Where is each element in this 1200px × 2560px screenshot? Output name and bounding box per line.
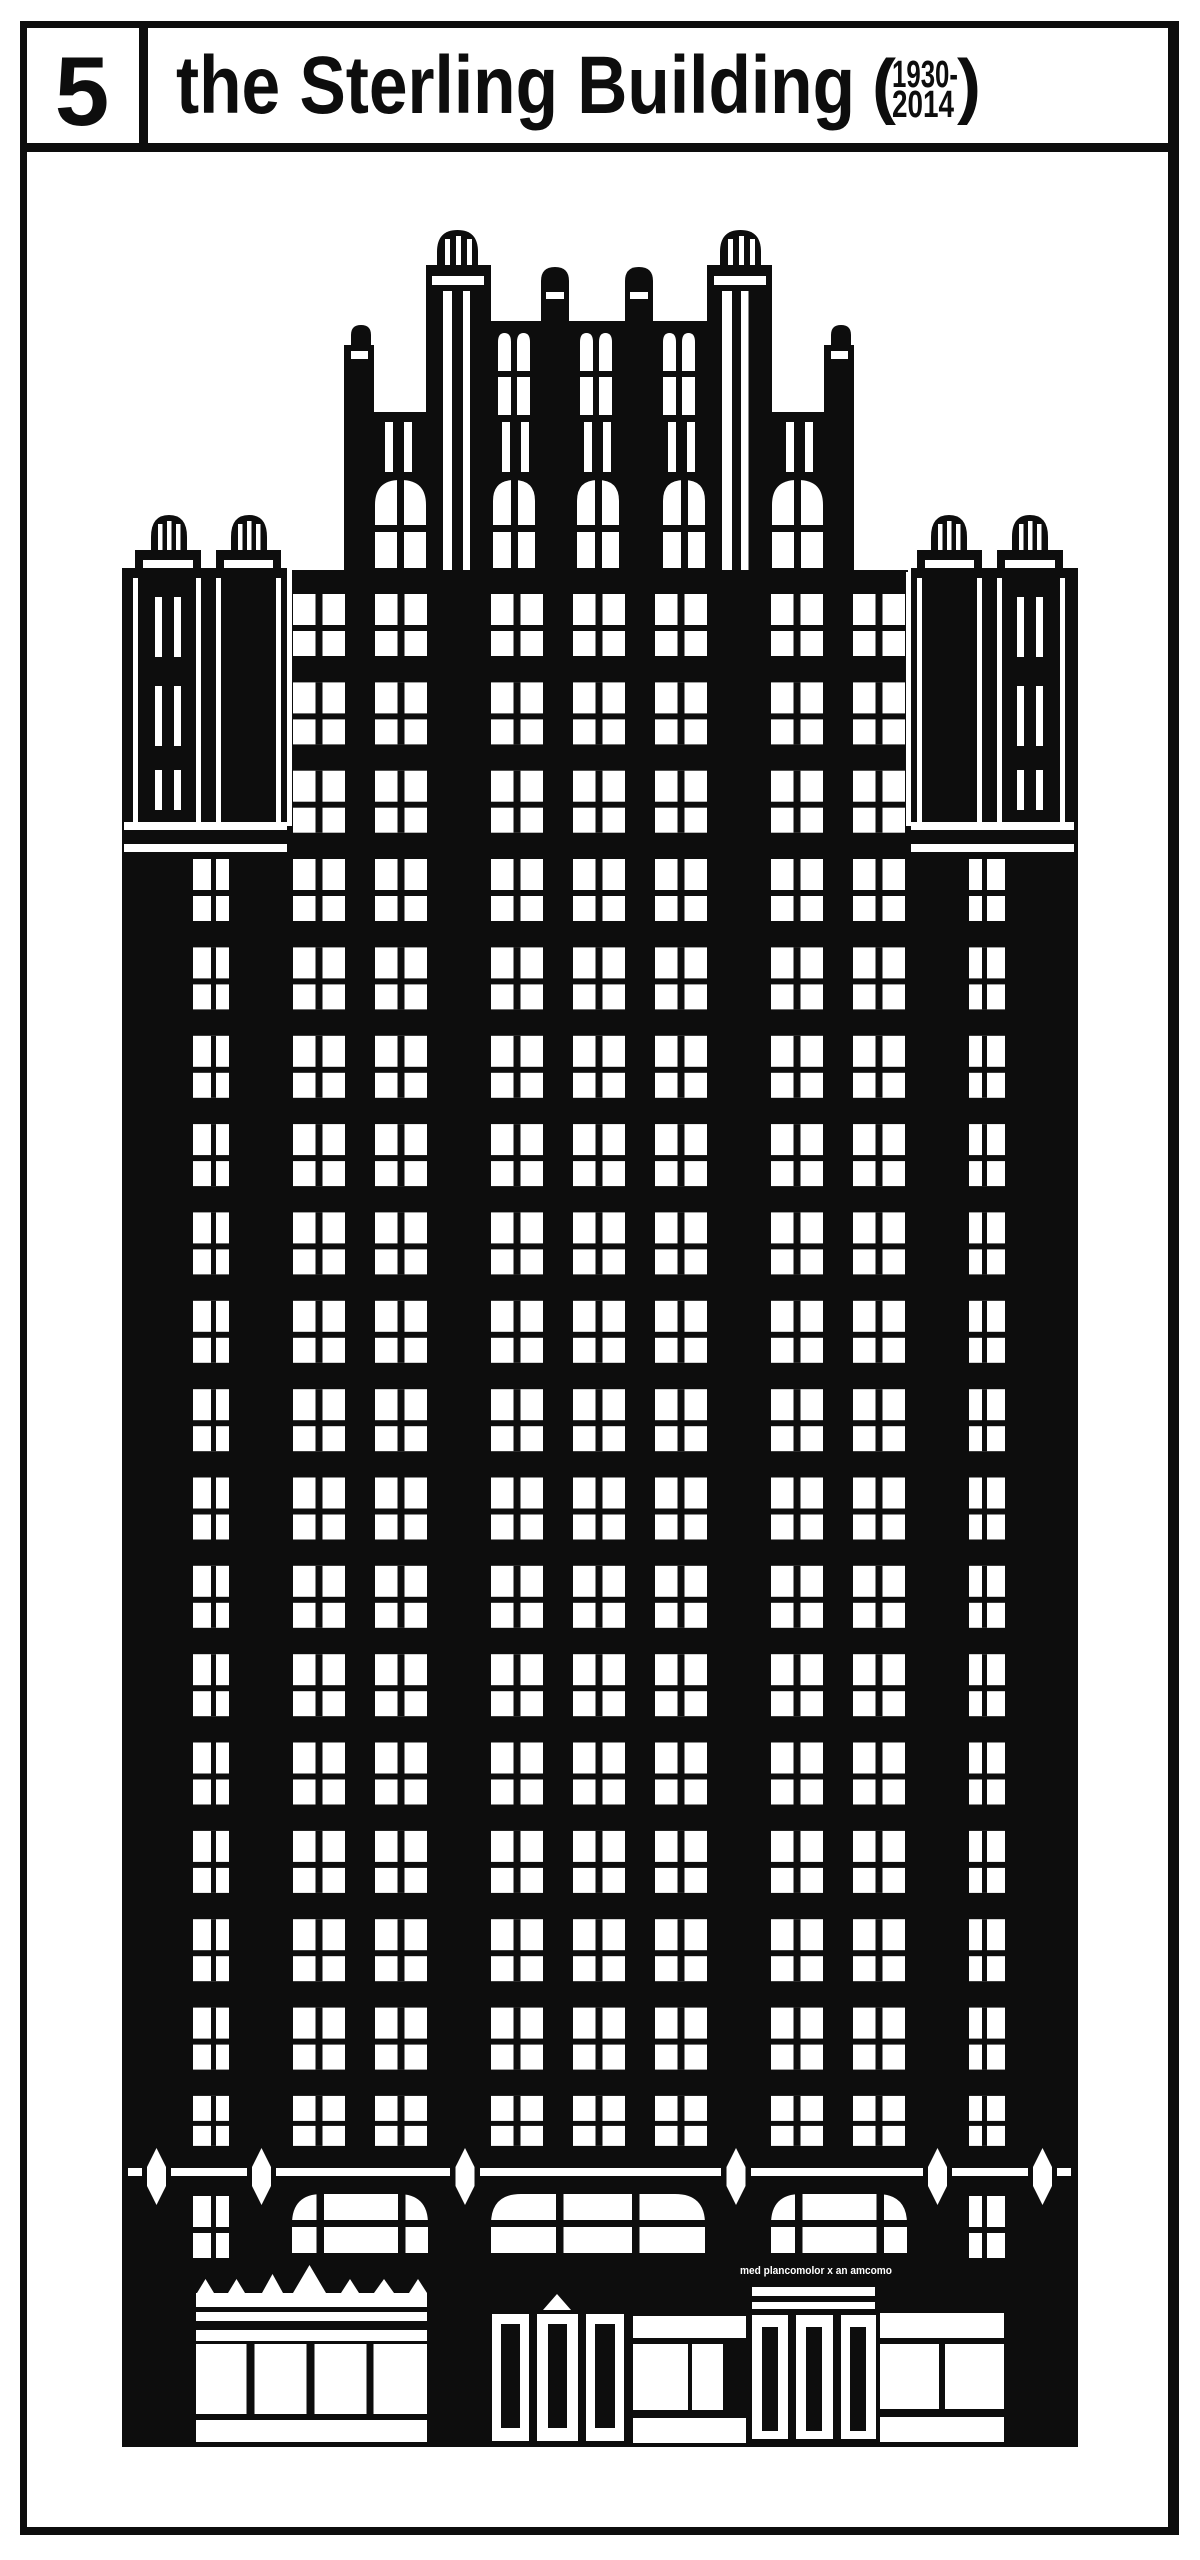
svg-text:): ) [957, 46, 981, 126]
svg-text:5: 5 [55, 36, 110, 146]
svg-text:2014: 2014 [892, 84, 954, 126]
svg-text:the Sterling Building: the Sterling Building [176, 40, 855, 131]
svg-text:med plancomolor x an amcomo: med plancomolor x an amcomo [740, 2265, 892, 2277]
